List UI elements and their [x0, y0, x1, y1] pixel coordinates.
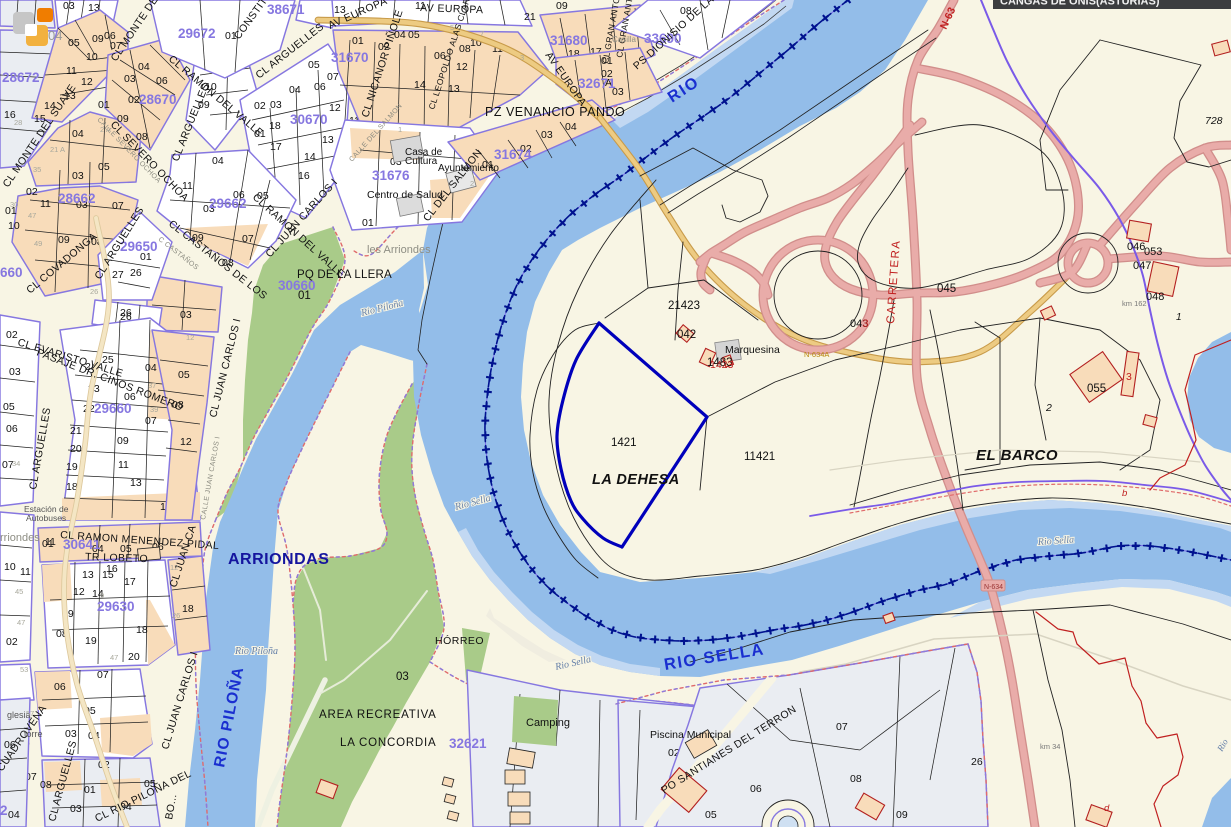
- svg-text:07: 07: [242, 233, 254, 245]
- svg-text:13: 13: [82, 569, 94, 581]
- svg-text:11: 11: [118, 459, 129, 471]
- svg-text:28: 28: [14, 118, 22, 127]
- svg-text:12: 12: [180, 436, 192, 448]
- svg-text:16: 16: [106, 563, 118, 575]
- svg-text:02: 02: [254, 100, 266, 112]
- svg-text:18: 18: [269, 120, 281, 132]
- svg-text:Piscina Municipal: Piscina Municipal: [650, 729, 731, 741]
- svg-text:04: 04: [48, 28, 62, 43]
- svg-text:05: 05: [98, 161, 110, 173]
- svg-text:EL BARCO: EL BARCO: [976, 447, 1058, 464]
- svg-text:04: 04: [8, 809, 20, 821]
- svg-text:29672: 29672: [178, 26, 216, 41]
- svg-text:01: 01: [42, 538, 54, 550]
- svg-text:26: 26: [971, 756, 983, 768]
- svg-text:06: 06: [314, 81, 326, 93]
- svg-text:1: 1: [1176, 312, 1182, 323]
- svg-text:04: 04: [138, 61, 150, 73]
- svg-text:LA CONCORDIA: LA CONCORDIA: [340, 737, 437, 749]
- svg-text:53: 53: [20, 665, 28, 674]
- svg-text:9: 9: [100, 591, 104, 600]
- svg-text:torre: torre: [24, 729, 43, 739]
- svg-text:048: 048: [1146, 291, 1164, 303]
- svg-text:b: b: [1122, 488, 1127, 499]
- svg-text:05: 05: [308, 59, 320, 71]
- svg-text:21: 21: [70, 425, 82, 437]
- svg-text:ARRIONDAS: ARRIONDAS: [228, 551, 329, 568]
- svg-text:21423: 21423: [668, 300, 700, 312]
- svg-text:Centro de Salud: Centro de Salud: [367, 189, 443, 201]
- svg-text:7: 7: [480, 29, 484, 38]
- svg-text:14: 14: [304, 151, 316, 163]
- svg-text:05: 05: [3, 401, 15, 413]
- svg-text:km 34: km 34: [1040, 742, 1060, 751]
- svg-text:37: 37: [148, 381, 156, 390]
- svg-text:27: 27: [112, 269, 124, 281]
- svg-text:11: 11: [66, 65, 77, 77]
- svg-text:10: 10: [4, 561, 16, 573]
- svg-text:055: 055: [1087, 383, 1106, 395]
- svg-text:AREA RECREATIVA: AREA RECREATIVA: [319, 709, 437, 721]
- svg-text:04: 04: [72, 128, 84, 140]
- svg-text:20: 20: [70, 443, 82, 455]
- svg-text:rriondes: rriondes: [0, 532, 40, 544]
- svg-text:04: 04: [289, 84, 301, 96]
- svg-text:Rio Piloña: Rio Piloña: [234, 646, 278, 657]
- svg-text:03: 03: [124, 73, 136, 85]
- svg-text:03: 03: [270, 99, 282, 111]
- svg-text:2: 2: [1045, 402, 1052, 414]
- svg-text:03: 03: [180, 309, 192, 321]
- svg-text:01: 01: [298, 290, 311, 302]
- svg-text:1: 1: [398, 125, 402, 134]
- svg-text:12: 12: [73, 586, 85, 598]
- svg-text:18: 18: [182, 603, 194, 615]
- svg-text:PZ VENANCIO PANDO: PZ VENANCIO PANDO: [485, 105, 625, 119]
- svg-text:13: 13: [322, 134, 334, 146]
- svg-text:N-634A: N-634A: [804, 350, 829, 359]
- svg-text:26: 26: [90, 287, 98, 296]
- svg-text:06: 06: [6, 423, 18, 435]
- svg-text:03: 03: [70, 803, 82, 815]
- svg-text:10: 10: [8, 220, 20, 232]
- svg-text:03: 03: [541, 129, 553, 141]
- svg-text:728: 728: [1205, 115, 1223, 127]
- svg-text:km 162: km 162: [1122, 299, 1147, 308]
- svg-text:Marquesina: Marquesina: [725, 344, 780, 356]
- svg-text:05: 05: [68, 37, 80, 49]
- svg-text:07: 07: [145, 415, 157, 427]
- svg-text:02: 02: [26, 186, 38, 198]
- svg-text:02: 02: [6, 329, 18, 341]
- svg-text:LA DEHESA: LA DEHESA: [592, 472, 680, 488]
- svg-text:03: 03: [63, 0, 75, 12]
- svg-text:047: 047: [1133, 260, 1151, 272]
- svg-text:38671: 38671: [267, 2, 305, 17]
- svg-text:26: 26: [172, 611, 180, 620]
- svg-text:12: 12: [329, 102, 341, 114]
- svg-text:660: 660: [0, 265, 23, 280]
- svg-text:47: 47: [28, 211, 36, 220]
- svg-text:03: 03: [9, 366, 21, 378]
- svg-text:13: 13: [130, 477, 142, 489]
- svg-text:29660: 29660: [94, 401, 132, 416]
- svg-text:20: 20: [128, 651, 140, 663]
- svg-text:01: 01: [84, 784, 96, 796]
- svg-text:Camping: Camping: [526, 717, 570, 729]
- svg-text:28670: 28670: [139, 92, 177, 107]
- svg-text:19: 19: [85, 635, 97, 647]
- svg-text:01: 01: [362, 217, 374, 229]
- svg-text:07: 07: [97, 669, 109, 681]
- svg-text:28672: 28672: [2, 70, 40, 85]
- svg-text:12: 12: [186, 333, 194, 342]
- svg-text:18: 18: [136, 624, 148, 636]
- svg-text:3: 3: [863, 318, 869, 330]
- svg-text:08: 08: [40, 779, 52, 791]
- svg-text:09: 09: [896, 809, 908, 821]
- svg-text:32621: 32621: [449, 736, 487, 751]
- svg-text:03: 03: [72, 170, 84, 182]
- svg-text:03: 03: [396, 671, 409, 683]
- svg-text:053: 053: [1144, 246, 1162, 258]
- svg-text:07: 07: [327, 71, 339, 83]
- svg-text:01: 01: [352, 35, 364, 47]
- svg-text:49: 49: [34, 239, 42, 248]
- svg-text:09: 09: [92, 33, 104, 45]
- svg-text:08: 08: [850, 773, 862, 785]
- svg-text:5: 5: [450, 23, 454, 32]
- svg-text:06: 06: [156, 75, 168, 87]
- svg-text:35: 35: [33, 165, 41, 174]
- svg-text:11: 11: [20, 566, 31, 578]
- svg-text:26: 26: [130, 267, 142, 279]
- svg-text:05: 05: [178, 369, 190, 381]
- svg-text:31670: 31670: [331, 50, 369, 65]
- svg-text:3: 3: [520, 53, 524, 62]
- svg-text:Cultura: Cultura: [405, 156, 438, 167]
- svg-text:01: 01: [98, 99, 110, 111]
- svg-text:26: 26: [120, 307, 132, 319]
- svg-text:12: 12: [81, 76, 93, 88]
- svg-text:11: 11: [40, 198, 51, 210]
- svg-text:TR LOBETO: TR LOBETO: [85, 551, 148, 565]
- svg-text:32671: 32671: [578, 76, 616, 91]
- svg-text:30: 30: [10, 200, 18, 209]
- svg-text:29662: 29662: [209, 196, 247, 211]
- svg-text:29630: 29630: [97, 599, 135, 614]
- svg-text:07: 07: [836, 721, 848, 733]
- svg-text:47: 47: [110, 653, 118, 662]
- svg-text:3: 3: [1126, 371, 1132, 383]
- svg-text:09: 09: [556, 0, 568, 12]
- svg-text:les Arriondes: les Arriondes: [367, 244, 431, 256]
- svg-text:10: 10: [86, 51, 98, 63]
- svg-text:Ayuntamiento: Ayuntamiento: [438, 163, 499, 174]
- svg-text:21: 21: [524, 11, 536, 23]
- svg-text:12: 12: [456, 61, 468, 73]
- svg-text:13: 13: [448, 83, 460, 95]
- svg-text:47: 47: [17, 618, 25, 627]
- svg-text:02: 02: [6, 636, 18, 648]
- svg-text:31676: 31676: [372, 168, 410, 183]
- svg-text:1423: 1423: [710, 359, 734, 371]
- svg-text:Autobuses: Autobuses: [26, 513, 66, 523]
- svg-text:09: 09: [117, 435, 129, 447]
- svg-text:57: 57: [26, 709, 34, 718]
- svg-text:N-634: N-634: [984, 584, 1003, 591]
- svg-text:d: d: [1104, 803, 1110, 814]
- svg-text:2: 2: [470, 179, 474, 188]
- svg-text:09: 09: [58, 234, 70, 246]
- svg-text:14: 14: [414, 79, 426, 91]
- svg-text:16: 16: [298, 170, 310, 182]
- svg-text:28662: 28662: [58, 191, 96, 206]
- svg-text:04: 04: [565, 121, 577, 133]
- svg-text:06: 06: [54, 681, 66, 693]
- svg-text:1421: 1421: [611, 437, 637, 449]
- svg-text:17: 17: [124, 576, 136, 588]
- svg-text:34: 34: [12, 459, 20, 468]
- svg-text:042: 042: [677, 329, 696, 341]
- svg-text:046: 046: [1127, 241, 1145, 253]
- svg-text:03: 03: [65, 728, 77, 740]
- svg-text:CANGAS DE ONIS(ASTURIAS): CANGAS DE ONIS(ASTURIAS): [1000, 0, 1160, 8]
- svg-text:07: 07: [112, 200, 124, 212]
- svg-text:45: 45: [15, 587, 23, 596]
- svg-text:21 A: 21 A: [50, 145, 65, 154]
- svg-text:30670: 30670: [290, 112, 328, 127]
- svg-text:31680: 31680: [550, 33, 588, 48]
- svg-text:31674: 31674: [494, 147, 532, 162]
- svg-text:05: 05: [705, 809, 717, 821]
- svg-text:12: 12: [170, 563, 178, 572]
- svg-text:05: 05: [408, 29, 420, 41]
- svg-text:Casilla: Casilla: [612, 35, 637, 44]
- svg-text:39: 39: [150, 405, 158, 414]
- svg-text:17: 17: [270, 141, 282, 153]
- svg-text:06: 06: [750, 783, 762, 795]
- svg-text:AV EUROPA: AV EUROPA: [420, 2, 484, 16]
- svg-text:HÓRREO: HÓRREO: [435, 634, 484, 647]
- svg-text:2 A: 2 A: [100, 125, 111, 134]
- svg-text:045: 045: [937, 283, 956, 295]
- svg-text:04: 04: [145, 362, 157, 374]
- svg-text:2: 2: [0, 803, 8, 818]
- svg-text:04: 04: [212, 155, 224, 167]
- svg-text:11421: 11421: [744, 451, 775, 463]
- svg-text:PQ DE LA LLERA: PQ DE LA LLERA: [297, 269, 392, 281]
- svg-text:19: 19: [66, 461, 78, 473]
